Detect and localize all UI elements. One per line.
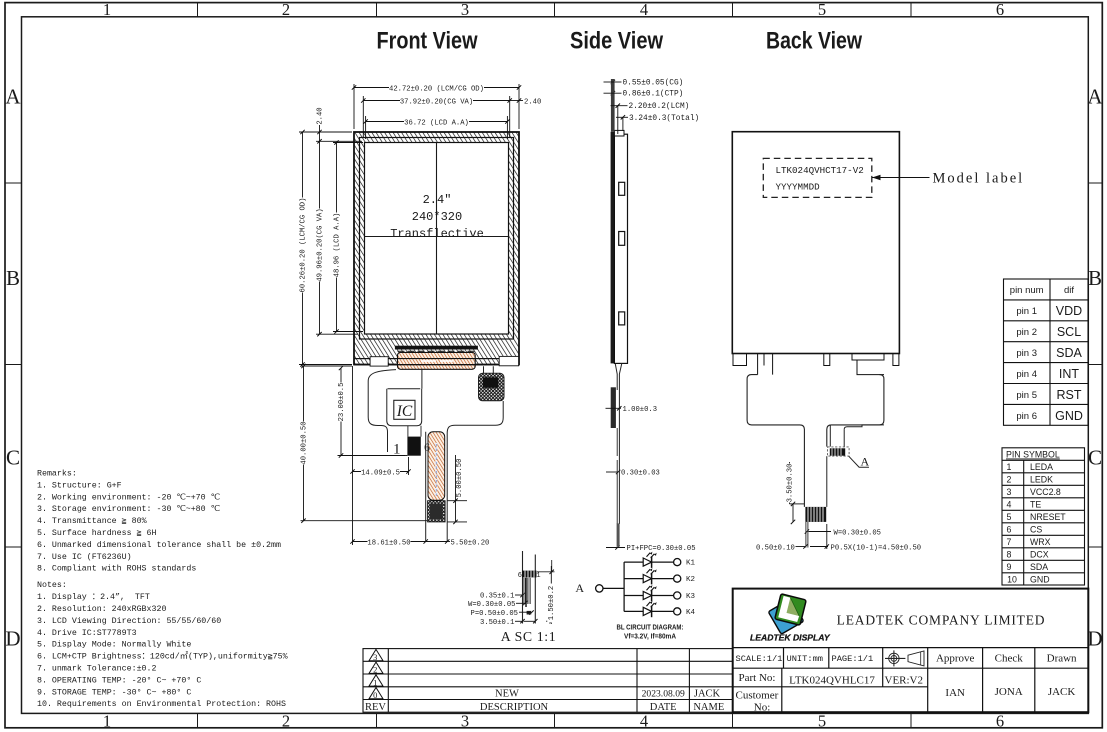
svg-text:2: 2 — [1007, 475, 1012, 485]
svg-text:LTK024QVHLC17: LTK024QVHLC17 — [789, 675, 875, 687]
svg-text:8. OPERATING TEMP: -20° C~ +70: 8. OPERATING TEMP: -20° C~ +70° C — [37, 676, 201, 685]
svg-text:P=0.50±0.05: P=0.50±0.05 — [471, 610, 518, 618]
svg-text:W=0.30±0.05: W=0.30±0.05 — [468, 601, 515, 609]
svg-text:REV: REV — [365, 702, 386, 713]
svg-text:2: 2 — [373, 665, 377, 675]
svg-text:7. unmark Tolerance:±0.2: 7. unmark Tolerance:±0.2 — [37, 664, 157, 674]
svg-text:4: 4 — [1007, 500, 1012, 510]
svg-text:pin 6: pin 6 — [1016, 411, 1037, 422]
svg-text:10. Requirements on Environmen: 10. Requirements on Environmental Protec… — [37, 699, 286, 709]
svg-text:2023.08.09: 2023.08.09 — [642, 689, 685, 700]
svg-text:K1: K1 — [686, 560, 696, 568]
svg-text:K2: K2 — [686, 576, 695, 584]
svg-text:pin 5: pin 5 — [1016, 390, 1037, 401]
svg-text:B: B — [1088, 266, 1102, 290]
svg-text:3. Storage environment: -30 ℃~: 3. Storage environment: -30 ℃~+80 ℃ — [37, 504, 220, 514]
svg-text:49.96±0.20(CG VA): 49.96±0.20(CG VA) — [316, 208, 324, 281]
svg-text:37.92±0.20(CG VA): 37.92±0.20(CG VA) — [400, 99, 473, 107]
svg-text:6: 6 — [996, 712, 1004, 731]
svg-text:3.24±0.3(Total): 3.24±0.3(Total) — [629, 115, 699, 123]
svg-text:1. Display ：2.4”, TFT: 1. Display ：2.4”, TFT — [37, 592, 150, 602]
svg-text:5.00±0.50: 5.00±0.50 — [456, 459, 464, 498]
svg-text:P0.5X(10-1)=4.50±0.50: P0.5X(10-1)=4.50±0.50 — [831, 545, 922, 553]
svg-text:SDA: SDA — [1030, 562, 1048, 572]
svg-text:3: 3 — [461, 0, 469, 19]
svg-text:GND: GND — [1055, 409, 1083, 423]
svg-text:Model label: Model label — [933, 171, 1025, 187]
svg-text:0.86±0.1(CTP): 0.86±0.1(CTP) — [623, 91, 684, 99]
svg-text:pin num: pin num — [1010, 285, 1044, 296]
svg-text:10: 10 — [1007, 575, 1017, 585]
svg-text:5: 5 — [818, 712, 826, 731]
svg-text:WRX: WRX — [1030, 537, 1051, 547]
svg-text:W=0.30±0.05: W=0.30±0.05 — [834, 530, 881, 538]
svg-text:C: C — [6, 446, 20, 470]
svg-text:4: 4 — [640, 0, 648, 19]
svg-text:5: 5 — [818, 0, 826, 19]
svg-text:7: 7 — [1007, 537, 1012, 547]
svg-text:48.96 (LCD A.A): 48.96 (LCD A.A) — [333, 213, 341, 278]
svg-text:CS: CS — [1030, 525, 1042, 535]
svg-text:7. Use IC (FT6236U): 7. Use IC (FT6236U) — [37, 552, 132, 562]
svg-text:4. Drive IC:ST7789T3: 4. Drive IC:ST7789T3 — [37, 628, 137, 638]
svg-text:6: 6 — [518, 572, 522, 580]
svg-text:JONA: JONA — [995, 686, 1023, 698]
svg-text:0.50±0.10: 0.50±0.10 — [756, 545, 795, 553]
svg-text:VCC2.8: VCC2.8 — [1030, 487, 1061, 497]
svg-text:3: 3 — [1007, 487, 1012, 497]
svg-text:14.09±0.5: 14.09±0.5 — [361, 470, 400, 478]
svg-text:LTK024QVHCT17-V2: LTK024QVHCT17-V2 — [776, 165, 864, 176]
svg-text:A: A — [575, 581, 584, 595]
svg-text:4: 4 — [640, 712, 648, 731]
svg-text:DESCRIPTION: DESCRIPTION — [480, 702, 549, 713]
svg-text:B: B — [6, 266, 20, 290]
svg-text:IAN: IAN — [945, 687, 965, 699]
svg-text:23.00±0.5: 23.00±0.5 — [338, 383, 346, 422]
svg-text:0.35±0.1: 0.35±0.1 — [480, 593, 515, 601]
svg-text:Approve: Approve — [936, 653, 975, 665]
svg-text:40.00±0.50: 40.00±0.50 — [300, 421, 308, 464]
svg-text:LEDA: LEDA — [1030, 462, 1053, 472]
svg-text:A: A — [861, 455, 870, 469]
svg-text:RST: RST — [1057, 388, 1082, 402]
svg-text:1: 1 — [103, 0, 111, 19]
svg-text:3: 3 — [373, 652, 377, 662]
svg-text:Part No:: Part No: — [739, 672, 776, 684]
svg-text:Customer: Customer — [736, 690, 779, 702]
svg-text:TE: TE — [1030, 500, 1041, 510]
svg-text:K4: K4 — [686, 609, 696, 617]
svg-text:6. Unmarked dimensional tolera: 6. Unmarked dimensional tolerance shall … — [37, 540, 281, 550]
svg-text:NEW: NEW — [495, 689, 519, 700]
svg-text:DATE: DATE — [650, 702, 677, 713]
svg-text:2. Resolution: 240xRGBx320: 2. Resolution: 240xRGBx320 — [37, 604, 166, 614]
svg-text:VER:V2: VER:V2 — [885, 675, 924, 687]
svg-text:C: C — [1088, 446, 1102, 470]
svg-text:LEDK: LEDK — [1030, 475, 1053, 485]
svg-text:36.72 (LCD A.A): 36.72 (LCD A.A) — [404, 120, 469, 128]
svg-text:9: 9 — [1007, 562, 1012, 572]
svg-text:SCALE:1/1: SCALE:1/1 — [736, 654, 783, 664]
svg-text:3.50±0.1: 3.50±0.1 — [480, 619, 515, 627]
svg-text:Remarks:: Remarks: — [37, 469, 77, 479]
svg-text:NAME: NAME — [693, 702, 724, 713]
svg-text:1: 1 — [373, 677, 377, 687]
svg-text:8. Compliant with ROHS standar: 8. Compliant with ROHS standards — [37, 564, 196, 574]
svg-text:IC: IC — [396, 403, 413, 420]
svg-text:6: 6 — [1007, 525, 1012, 535]
svg-text:2.40: 2.40 — [316, 107, 324, 124]
svg-text:Front View: Front View — [377, 28, 478, 55]
svg-text:BL CIRCUIT DIAGRAM:: BL CIRCUIT DIAGRAM: — [617, 625, 684, 632]
svg-text:Transflective: Transflective — [390, 227, 484, 241]
svg-text:INT: INT — [1059, 367, 1080, 381]
svg-text:5. Display Mode: Normally Whit: 5. Display Mode: Normally White — [37, 640, 191, 650]
svg-text:K3: K3 — [686, 593, 696, 601]
svg-text:2: 2 — [282, 0, 290, 19]
svg-text:4. Transmittance ≧ 80%: 4. Transmittance ≧ 80% — [37, 516, 147, 526]
svg-text:pin 1: pin 1 — [1016, 306, 1037, 317]
svg-text:PI+FPC=0.30±0.05: PI+FPC=0.30±0.05 — [627, 545, 696, 553]
svg-text:pin 4: pin 4 — [1016, 369, 1037, 380]
svg-text:LEADTEK DISPLAY: LEADTEK DISPLAY — [750, 633, 831, 643]
svg-text:3.50±0.30: 3.50±0.30 — [786, 464, 794, 503]
svg-text:2.40: 2.40 — [524, 99, 541, 107]
svg-text:JACK: JACK — [694, 689, 721, 700]
svg-text:1: 1 — [1007, 462, 1012, 472]
svg-text:D: D — [5, 627, 20, 651]
svg-text:Check: Check — [995, 653, 1024, 665]
svg-text:GND: GND — [1030, 575, 1050, 585]
svg-text:1. Structure: G+F: 1. Structure: G+F — [37, 481, 122, 490]
svg-text:0.30±0.03: 0.30±0.03 — [621, 470, 660, 478]
svg-text:No:: No: — [754, 702, 771, 714]
svg-text:5: 5 — [1007, 512, 1012, 522]
svg-text:pin 2: pin 2 — [1016, 327, 1037, 338]
svg-text:PIN SYMBOL: PIN SYMBOL — [1006, 450, 1060, 460]
svg-text:SDA: SDA — [1056, 346, 1082, 360]
svg-text:42.72±0.20 (LCM/CG OD): 42.72±0.20 (LCM/CG OD) — [389, 86, 484, 94]
svg-text:3. LCD Viewing Direction: 55/5: 3. LCD Viewing Direction: 55/55/60/60 — [37, 616, 221, 626]
svg-text:LEADTEK COMPANY LIMITED: LEADTEK COMPANY LIMITED — [837, 613, 1046, 628]
svg-text:DCX: DCX — [1030, 550, 1049, 560]
svg-text:3: 3 — [461, 712, 469, 731]
svg-text:6: 6 — [996, 0, 1004, 19]
svg-text:0: 0 — [373, 690, 377, 700]
svg-text:PAGE:1/1: PAGE:1/1 — [832, 654, 874, 664]
svg-text:6: 6 — [424, 440, 430, 454]
svg-text:5.50±0.20: 5.50±0.20 — [451, 540, 490, 548]
svg-text:2: 2 — [282, 712, 290, 731]
svg-text:D: D — [1087, 627, 1102, 651]
svg-text:2.20±0.2(LCM): 2.20±0.2(LCM) — [629, 103, 690, 111]
svg-text:Side View: Side View — [570, 28, 663, 55]
svg-text:SCL: SCL — [1057, 325, 1081, 339]
svg-text:8: 8 — [1007, 550, 1012, 560]
svg-text:6. LCM+CTP Brightness：120cd/㎡(: 6. LCM+CTP Brightness：120cd/㎡(TYP),unifo… — [37, 652, 288, 662]
svg-text:2.4″: 2.4″ — [423, 193, 452, 207]
svg-text:UNIT:mm: UNIT:mm — [787, 654, 824, 664]
svg-text:Vf=3.2V, If=80mA: Vf=3.2V, If=80mA — [624, 634, 676, 641]
svg-text:1: 1 — [103, 712, 111, 731]
svg-text:1.50±0.2: 1.50±0.2 — [548, 586, 556, 621]
svg-text:JACK: JACK — [1048, 686, 1076, 698]
svg-text:240*320: 240*320 — [412, 210, 462, 224]
svg-text:A: A — [5, 85, 21, 109]
svg-text:1: 1 — [536, 572, 540, 580]
svg-text:pin 3: pin 3 — [1016, 348, 1037, 359]
svg-text:5. Surface hardness ≧ 6H: 5. Surface hardness ≧ 6H — [37, 528, 157, 538]
svg-text:NRESET: NRESET — [1030, 512, 1066, 522]
svg-text:Drawn: Drawn — [1047, 653, 1077, 665]
svg-text:dif: dif — [1064, 285, 1074, 296]
svg-text:60.26±0.20 (LCM/CG OD): 60.26±0.20 (LCM/CG OD) — [299, 198, 307, 293]
svg-text:Back View: Back View — [766, 28, 862, 55]
svg-text:A: A — [1087, 85, 1103, 109]
svg-text:1.00±0.3: 1.00±0.3 — [623, 406, 658, 414]
svg-text:9. STORAGE TEMP: -30° C~ +80°: 9. STORAGE TEMP: -30° C~ +80° C — [37, 688, 191, 697]
svg-text:Notes:: Notes: — [37, 581, 67, 590]
svg-text:VDD: VDD — [1056, 304, 1082, 318]
svg-text:A SC 1:1: A SC 1:1 — [501, 629, 556, 644]
svg-text:0.55±0.05(CG): 0.55±0.05(CG) — [623, 80, 684, 88]
svg-text:18.61±0.50: 18.61±0.50 — [367, 540, 410, 548]
svg-text:YYYYMMDD: YYYYMMDD — [776, 181, 821, 192]
svg-text:2. Working environment: -20 ℃~: 2. Working environment: -20 ℃~+70 ℃ — [37, 492, 220, 502]
